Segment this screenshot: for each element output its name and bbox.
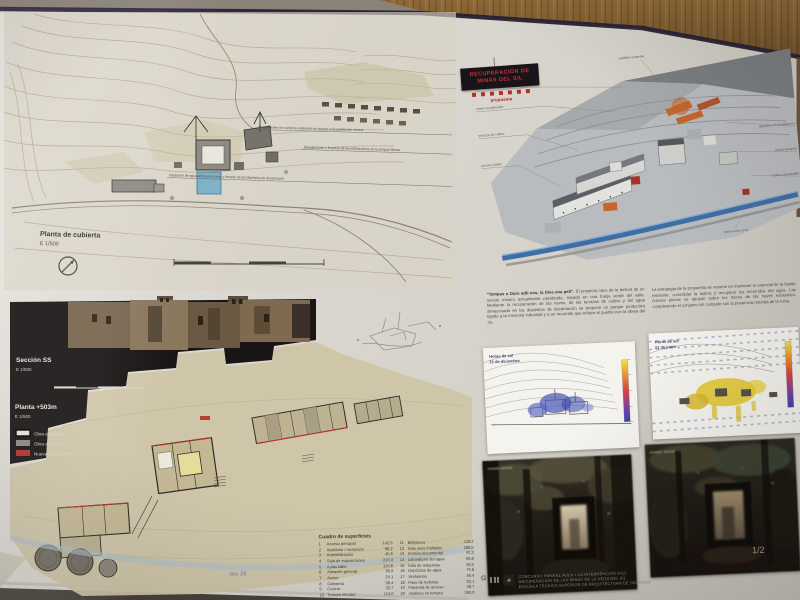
tank	[99, 559, 117, 577]
legend-label: Nueva intervención	[34, 452, 73, 457]
sun-study-winter: Horas de sol 21 de diciembre	[483, 341, 640, 454]
shade-blobs	[527, 391, 594, 417]
logo-g-icon: G	[481, 575, 487, 582]
table-column-2: 11 Biblioteca 118,2 12 Sala usos múltipl…	[400, 539, 475, 597]
section-label: Sección SS	[16, 357, 52, 364]
project-title-legend: RECUPERACIÓN DE MINAS DEL SIL propuesta	[460, 54, 541, 104]
table-column-1: 1 Acceso principal 142,5 2 Vestíbulo / r…	[319, 540, 394, 598]
diagram-subtitle: 21 de junio	[655, 344, 677, 350]
page-number: 1/2	[752, 545, 765, 555]
river-label: Río Sil	[230, 571, 247, 578]
photographed-presentation-board: Se mantienen los caminos existentes de a…	[0, 0, 800, 600]
leader-tick	[493, 57, 495, 66]
callout-label: acceso rodado	[481, 162, 502, 168]
roof-plan-drawing: Se mantienen los caminos existentes de a…	[4, 12, 456, 290]
axono-sketch-thumbnail	[357, 312, 440, 350]
color-scale-bar	[785, 341, 794, 407]
area-schedule-table: Cuadro de superficies 1 Acceso principal…	[318, 532, 477, 598]
school-logo-icon: al	[503, 574, 514, 585]
section-scale: E 1/500	[16, 367, 32, 372]
sun-study-summer: Horas de sol 21 de junio	[648, 327, 800, 440]
legend-label: Obra ampliada	[34, 442, 64, 447]
legend-label: Obra existente	[34, 432, 64, 437]
logo-bars-icon	[490, 577, 499, 583]
plan-scale: E 1/500	[40, 241, 59, 247]
ruin-photo-collage	[68, 296, 310, 350]
patio	[177, 451, 202, 476]
site-photo-2: estado actual	[645, 438, 800, 578]
sun-blobs	[684, 376, 768, 424]
diagram-subtitle: 21 de diciembre	[489, 358, 520, 364]
memoria-paragraph-1: “Tempus o Duro adti nos, la Diva ana pet…	[486, 286, 645, 325]
plan-level-label: Planta +503m	[15, 404, 57, 411]
plan-level-scale: E 1/500	[15, 414, 31, 419]
